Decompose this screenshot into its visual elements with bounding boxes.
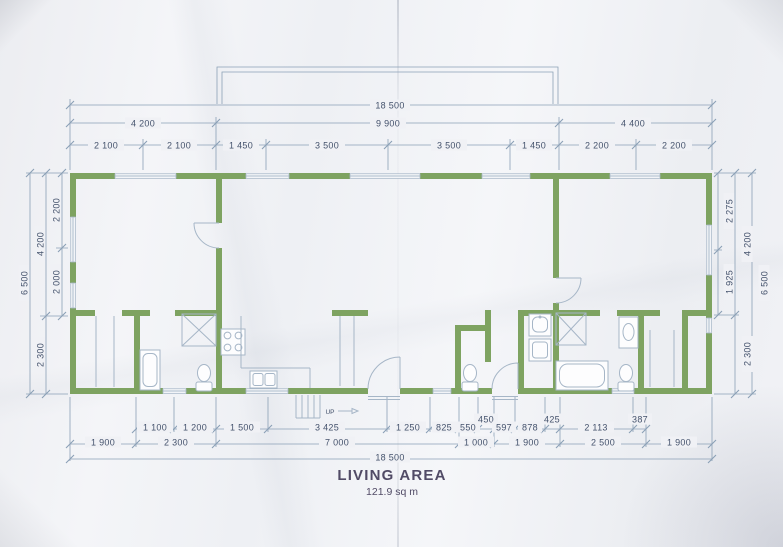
svg-text:2 000: 2 000: [52, 270, 62, 294]
svg-text:2 200: 2 200: [52, 198, 62, 222]
svg-text:7 000: 7 000: [325, 438, 349, 448]
dim-labels-bottom: 1 100 1 200 1 500 3 425 1 250 825 550 45…: [85, 414, 697, 463]
dim-label: 9 900: [370, 118, 406, 129]
svg-text:4 200: 4 200: [131, 119, 155, 129]
dim-label: 1 925: [724, 264, 735, 300]
svg-text:2 100: 2 100: [167, 141, 191, 151]
svg-text:2 300: 2 300: [164, 438, 188, 448]
svg-text:1 450: 1 450: [229, 141, 253, 151]
dim-label: 6 500: [19, 265, 30, 301]
svg-text:450: 450: [478, 415, 494, 425]
floor-plan-drawing: UP: [0, 0, 783, 547]
svg-text:550: 550: [460, 423, 476, 433]
right-entry-door-arc: [492, 363, 518, 400]
dim-label: 2 100: [88, 140, 124, 151]
svg-text:18 500: 18 500: [375, 101, 404, 111]
dim-label-overall-top: 18 500: [370, 100, 410, 111]
shower-left: [182, 314, 216, 346]
dim-label: 1 250: [390, 422, 426, 433]
dim-label: 1 200: [177, 422, 213, 433]
svg-text:2 200: 2 200: [585, 141, 609, 151]
svg-text:4 400: 4 400: [621, 119, 645, 129]
title-block: LIVING AREA 121.9 sq m: [337, 467, 446, 498]
dim-label: 425: [540, 414, 564, 425]
dim-label: 1 900: [509, 437, 545, 448]
svg-text:4 200: 4 200: [36, 232, 46, 256]
dim-label: 4 200: [125, 118, 161, 129]
svg-text:1 500: 1 500: [230, 423, 254, 433]
svg-text:597: 597: [496, 423, 512, 433]
closet-shelf-lines: [96, 316, 114, 387]
dim-label: 4 200: [35, 226, 46, 262]
dim-label: 6 500: [759, 265, 770, 301]
dim-label: 3 500: [309, 140, 345, 151]
dim-label: 3 425: [309, 422, 345, 433]
svg-text:825: 825: [436, 423, 452, 433]
dim-labels-right: 6 500 4 200 2 300 2 275 1 925: [724, 193, 770, 372]
svg-text:18 500: 18 500: [375, 453, 404, 463]
area-value: 121.9 sq m: [366, 486, 418, 498]
svg-text:1 250: 1 250: [396, 423, 420, 433]
dim-label: 825: [432, 422, 456, 433]
dim-label: 7 000: [319, 437, 355, 448]
svg-text:2 200: 2 200: [662, 141, 686, 151]
windows: [71, 174, 712, 393]
svg-text:1 925: 1 925: [725, 270, 735, 294]
exterior-walls: [70, 173, 712, 394]
dim-label: 2 200: [656, 140, 692, 151]
svg-text:1 200: 1 200: [183, 423, 207, 433]
dim-labels-left: 6 500 4 200 2 300 2 200 2 000: [19, 192, 62, 373]
svg-text:2 500: 2 500: [591, 438, 615, 448]
dim-label: 1 100: [137, 422, 173, 433]
dim-label: 1 450: [223, 140, 259, 151]
dim-label: 4 200: [742, 226, 753, 262]
svg-text:9 900: 9 900: [376, 119, 400, 129]
svg-text:878: 878: [522, 423, 538, 433]
dim-label: 2 000: [51, 264, 62, 300]
left-entry-door-arc: [368, 357, 400, 400]
dim-label: 2 200: [51, 192, 62, 228]
dim-label: 2 300: [742, 336, 753, 372]
svg-text:2 113: 2 113: [584, 423, 607, 433]
dim-label: 2 113: [578, 422, 614, 433]
svg-text:3 425: 3 425: [315, 423, 339, 433]
dim-label: 2 200: [579, 140, 615, 151]
dim-label: 2 300: [158, 437, 194, 448]
dim-label: 1 450: [516, 140, 552, 151]
svg-text:6 500: 6 500: [760, 271, 770, 295]
dim-label: 387: [628, 414, 652, 425]
entry-stairs: UP: [296, 395, 358, 418]
dim-label: 1 900: [661, 437, 697, 448]
dim-label: 1 000: [458, 437, 494, 448]
kitchen-sink-left: [250, 371, 277, 388]
roof-overhang-outline: [217, 67, 558, 104]
bathtub-left: [140, 350, 160, 390]
svg-text:3 500: 3 500: [315, 141, 339, 151]
stairs-up-label: UP: [325, 409, 334, 416]
svg-text:2 300: 2 300: [36, 343, 46, 367]
svg-text:2 100: 2 100: [94, 141, 118, 151]
svg-text:1 100: 1 100: [143, 423, 167, 433]
toilet-right: [618, 365, 634, 392]
dim-label: 2 100: [161, 140, 197, 151]
dim-label: 2 275: [724, 193, 735, 229]
dim-label: 1 900: [85, 437, 121, 448]
svg-text:1 450: 1 450: [522, 141, 546, 151]
unit-divider-door-arc: [556, 278, 581, 303]
washer-right: [529, 339, 551, 361]
svg-text:3 500: 3 500: [437, 141, 461, 151]
svg-text:1 900: 1 900: [515, 438, 539, 448]
svg-text:2 275: 2 275: [725, 199, 735, 223]
bedroom-closet-lines-right: [650, 330, 674, 387]
vanity-sink-right: [619, 317, 638, 348]
bathtub-right: [556, 361, 608, 390]
interior-walls: [70, 173, 712, 394]
toilet-left: [196, 365, 212, 392]
svg-text:425: 425: [544, 415, 560, 425]
dim-label-overall-bottom: 18 500: [370, 452, 410, 463]
svg-text:2 300: 2 300: [743, 342, 753, 366]
bedroom-door-arc: [194, 223, 219, 248]
svg-text:1 900: 1 900: [91, 438, 115, 448]
entry-closet-lines: [340, 316, 354, 386]
dim-label: 4 400: [615, 118, 651, 129]
scanned-floor-plan-page: UP: [0, 0, 783, 547]
shower-right: [556, 313, 586, 345]
svg-text:387: 387: [632, 415, 648, 425]
svg-text:1 000: 1 000: [464, 438, 488, 448]
dim-label: 3 500: [431, 140, 467, 151]
dim-label: 2 500: [585, 437, 621, 448]
svg-text:4 200: 4 200: [743, 232, 753, 256]
svg-text:1 900: 1 900: [667, 438, 691, 448]
dimension-lines-left: [26, 169, 68, 398]
dim-label: 1 500: [224, 422, 260, 433]
svg-text:6 500: 6 500: [20, 271, 30, 295]
dim-label: 2 300: [35, 337, 46, 373]
dim-label: 597: [492, 422, 516, 433]
toilet-wc-right-unit: [462, 365, 478, 392]
page-title: LIVING AREA: [337, 467, 446, 484]
washbasin-right: [529, 314, 551, 336]
dim-label: 878: [518, 422, 542, 433]
